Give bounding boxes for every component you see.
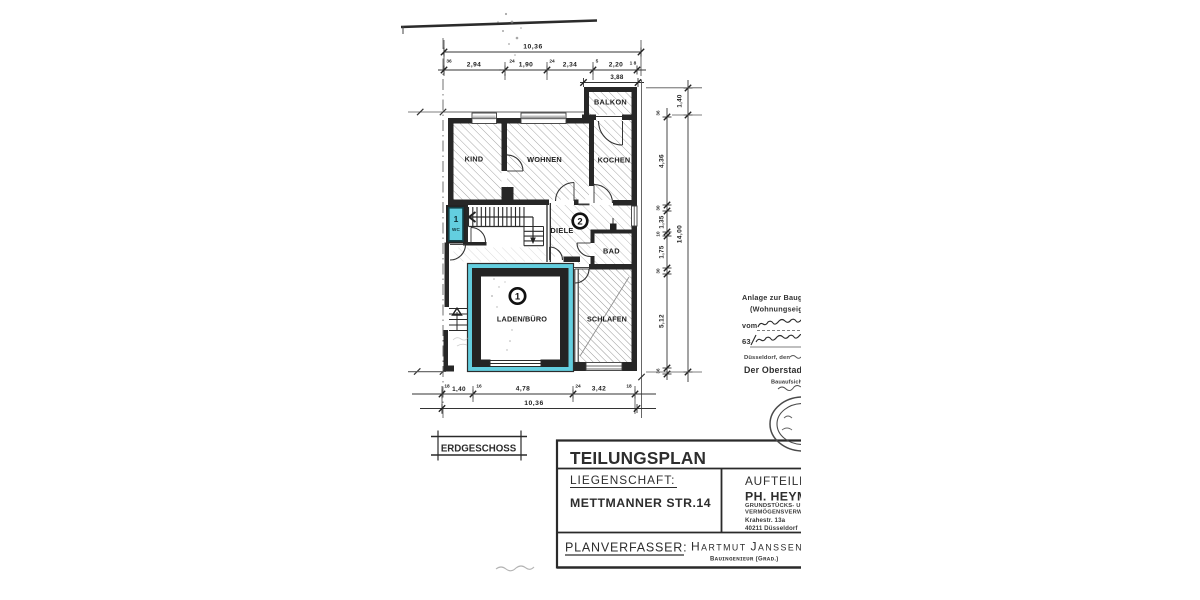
svg-text:1,40: 1,40 xyxy=(452,386,466,393)
svg-text:36: 36 xyxy=(656,368,661,374)
svg-text:WC: WC xyxy=(452,227,461,232)
svg-text:1: 1 xyxy=(454,214,459,224)
svg-text:1,35: 1,35 xyxy=(659,215,666,229)
svg-text:24: 24 xyxy=(549,59,555,65)
svg-text:BALKON: BALKON xyxy=(594,98,627,107)
svg-text:10,36: 10,36 xyxy=(524,400,544,407)
svg-text:10,36: 10,36 xyxy=(523,44,543,51)
svg-text:3,88: 3,88 xyxy=(610,74,624,81)
svg-text:Bᴀᴜɪɴɢᴇɴɪᴇᴜʀ (Gʀᴀᴅ.): Bᴀᴜɪɴɢᴇɴɪᴇᴜʀ (Gʀᴀᴅ.) xyxy=(710,557,779,563)
svg-text:ERDGESCHOSS: ERDGESCHOSS xyxy=(441,444,517,455)
svg-text:Der Oberstadtd: Der Oberstadtd xyxy=(744,365,811,375)
svg-text:HARTMUT JANSSEN: HARTMUT JANSSEN xyxy=(691,540,803,554)
svg-text:KOCHEN: KOCHEN xyxy=(598,156,631,165)
svg-text:30: 30 xyxy=(656,268,661,274)
svg-text:1: 1 xyxy=(515,292,521,303)
svg-text:14,00: 14,00 xyxy=(677,225,684,244)
svg-text:4,78: 4,78 xyxy=(516,386,530,393)
svg-text:24: 24 xyxy=(509,59,515,65)
svg-text:16: 16 xyxy=(476,384,482,390)
svg-text:SCHLAFEN: SCHLAFEN xyxy=(587,315,627,324)
svg-text:63: 63 xyxy=(742,337,751,346)
svg-text:10: 10 xyxy=(656,231,661,237)
svg-text:PLANVERFASSER:: PLANVERFASSER: xyxy=(565,541,687,555)
svg-text:1 8: 1 8 xyxy=(630,61,637,67)
svg-text:Düsseldorf, den: Düsseldorf, den xyxy=(744,355,790,361)
svg-text:36: 36 xyxy=(446,59,452,65)
svg-text:2,34: 2,34 xyxy=(563,62,577,69)
svg-text:2,20: 2,20 xyxy=(609,62,623,69)
svg-text:DIELE: DIELE xyxy=(550,226,573,235)
svg-text:Bauaufsich: Bauaufsich xyxy=(771,380,803,386)
svg-text:24: 24 xyxy=(575,384,581,390)
svg-text:vom: vom xyxy=(742,321,757,330)
svg-text:36: 36 xyxy=(656,110,661,116)
svg-text:1,40: 1,40 xyxy=(677,94,684,108)
svg-text:3,42: 3,42 xyxy=(592,386,606,393)
svg-text:4,36: 4,36 xyxy=(659,154,666,168)
svg-text:TEILUNGSPLAN: TEILUNGSPLAN xyxy=(570,448,706,468)
svg-text:METTMANNER STR.14: METTMANNER STR.14 xyxy=(570,496,711,510)
svg-text:BAD: BAD xyxy=(603,247,620,256)
svg-text:KIND: KIND xyxy=(465,155,484,164)
svg-text:18: 18 xyxy=(444,384,450,390)
svg-text:1,75: 1,75 xyxy=(659,245,666,259)
svg-text:5: 5 xyxy=(596,59,599,65)
svg-text:(Wohnungseig: (Wohnungseig xyxy=(750,305,803,314)
svg-text:GRUNDSTÜCKS- UND: GRUNDSTÜCKS- UND xyxy=(745,502,809,509)
svg-text:1,90: 1,90 xyxy=(519,62,533,69)
svg-text:LIEGENSCHAFT:: LIEGENSCHAFT: xyxy=(570,473,675,487)
svg-text:Krahestr. 13a: Krahestr. 13a xyxy=(745,517,786,524)
svg-text:30: 30 xyxy=(656,205,661,211)
svg-text:2,94: 2,94 xyxy=(467,62,481,69)
svg-text:5,12: 5,12 xyxy=(659,314,666,328)
svg-text:40211 Düsseldorf: 40211 Düsseldorf xyxy=(745,525,798,532)
svg-text:2: 2 xyxy=(577,217,582,228)
svg-text:LADEN/BÜRO: LADEN/BÜRO xyxy=(497,315,547,324)
svg-text:WOHNEN: WOHNEN xyxy=(527,155,562,164)
svg-text:18: 18 xyxy=(626,384,632,390)
